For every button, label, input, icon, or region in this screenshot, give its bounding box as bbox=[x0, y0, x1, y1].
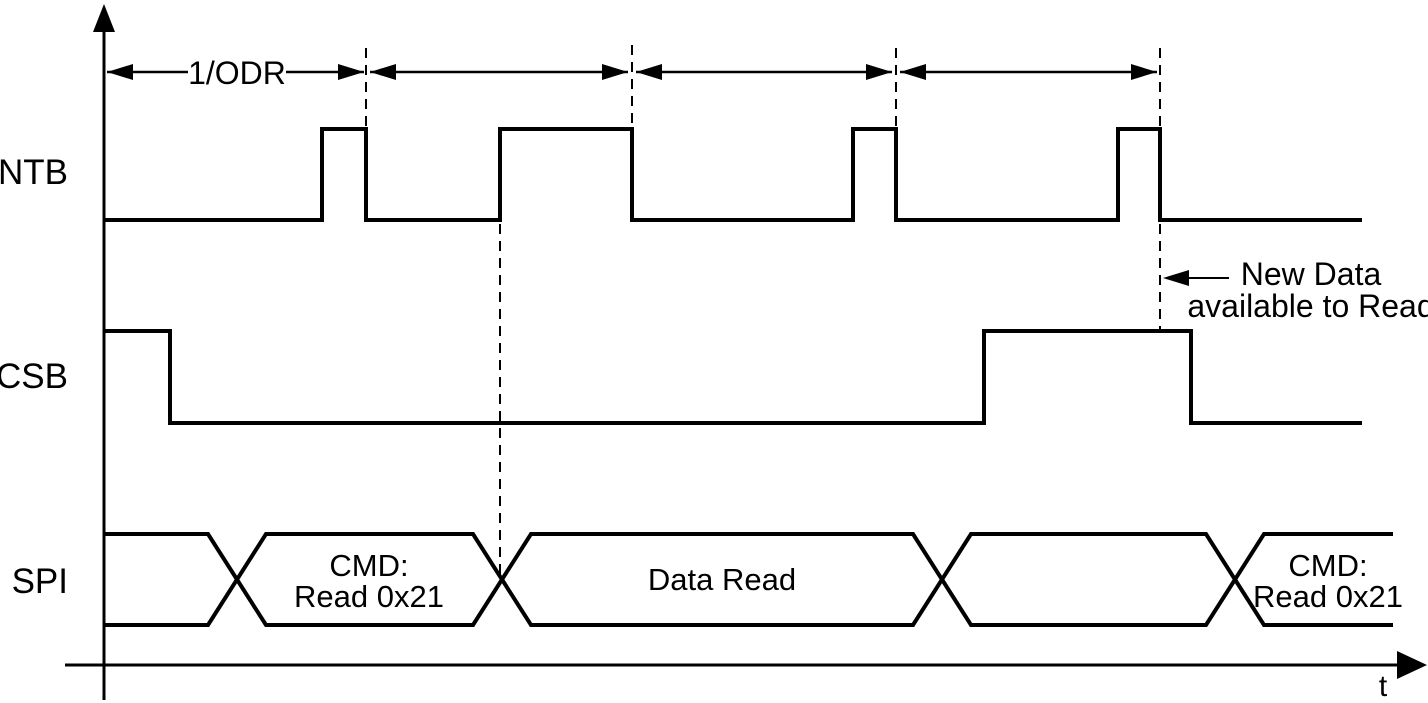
period-span-3 bbox=[636, 64, 892, 80]
dimension-arrow-left-icon bbox=[370, 64, 396, 80]
spi-segment-cmd-line1: CMD: bbox=[1288, 548, 1367, 583]
x-axis-arrowhead-icon bbox=[1397, 651, 1427, 679]
y-axis-arrowhead-icon bbox=[93, 4, 115, 32]
dimension-arrow-right-icon bbox=[338, 64, 364, 80]
spi-segment-label-cmd-read-2: CMD: Read 0x21 bbox=[1253, 548, 1403, 614]
period-span-2 bbox=[370, 64, 628, 80]
spi-segment-cmd-line2: Read 0x21 bbox=[294, 579, 444, 614]
spi-segment-cmd-line2: Read 0x21 bbox=[1253, 579, 1403, 614]
new-data-annotation-line2: available to Read bbox=[1187, 288, 1428, 324]
new-data-arrow-icon bbox=[1163, 270, 1189, 286]
csb-waveform bbox=[104, 331, 1362, 423]
timing-diagram-canvas: t 1/ODR bbox=[0, 0, 1428, 703]
new-data-annotation-line1: New Data bbox=[1241, 256, 1382, 292]
period-label: 1/ODR bbox=[188, 55, 286, 91]
period-span-4 bbox=[900, 64, 1157, 80]
spi-segment-label-data-read: Data Read bbox=[648, 562, 796, 597]
period-span-1: 1/ODR bbox=[107, 55, 364, 91]
spi-segment-cmd-line1: CMD: bbox=[329, 548, 408, 583]
new-data-annotation: New Data available to Read bbox=[1163, 256, 1428, 324]
dimension-arrow-right-icon bbox=[866, 64, 892, 80]
time-axis-label: t bbox=[1379, 670, 1388, 703]
signal-label-csb: CSB bbox=[0, 357, 68, 396]
signal-label-intb: INTB bbox=[0, 153, 68, 192]
timing-diagram: t 1/ODR bbox=[0, 0, 1428, 703]
dimension-arrow-right-icon bbox=[602, 64, 628, 80]
signal-label-spi: SPI bbox=[12, 562, 68, 601]
dimension-arrow-left-icon bbox=[636, 64, 662, 80]
dimension-arrow-left-icon bbox=[107, 64, 133, 80]
dimension-arrow-left-icon bbox=[900, 64, 926, 80]
dimension-arrow-right-icon bbox=[1131, 64, 1157, 80]
spi-segment-label-cmd-read-1: CMD: Read 0x21 bbox=[294, 548, 444, 614]
intb-waveform bbox=[104, 129, 1362, 220]
